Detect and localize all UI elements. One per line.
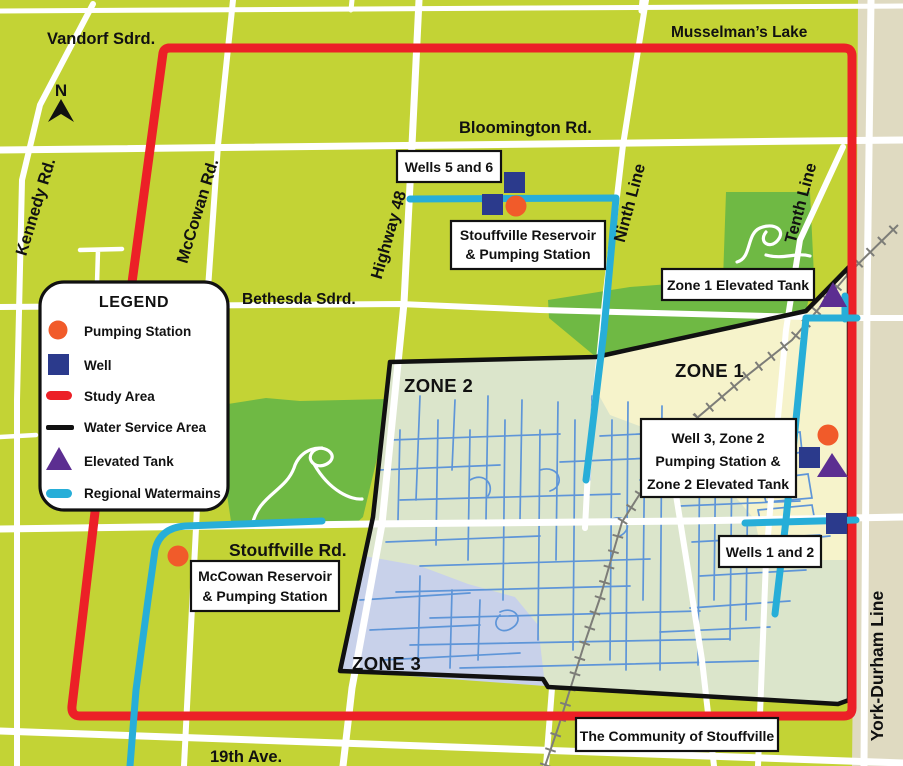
callout-text: & Pumping Station — [202, 588, 327, 604]
legend-title: LEGEND — [99, 294, 169, 311]
label-zone3: ZONE 3 — [352, 653, 421, 674]
legend: LEGEND Pumping Station Well Study Area W… — [40, 282, 228, 510]
legend-item-label: Elevated Tank — [84, 454, 174, 469]
well-marker — [482, 194, 503, 215]
label-york-durham: York-Durham Line — [867, 591, 887, 742]
label-19th-ave: 19th Ave. — [210, 748, 282, 766]
callout-text: Wells 5 and 6 — [405, 159, 494, 175]
callout-text: McCowan Reservoir — [198, 568, 332, 584]
legend-item-label: Study Area — [84, 389, 155, 404]
legend-item-label: Well — [84, 358, 112, 373]
callout-community: The Community of Stouffville — [576, 718, 778, 751]
callout-text: Wells 1 and 2 — [726, 544, 815, 560]
callout-wells-5-6: Wells 5 and 6 — [397, 151, 501, 182]
callout-wells-1-2: Wells 1 and 2 — [719, 536, 821, 567]
label-zone1: ZONE 1 — [675, 360, 744, 381]
callout-mccowan-reservoir: McCowan Reservoir & Pumping Station — [191, 561, 339, 611]
study-area-icon — [46, 391, 72, 400]
well-marker — [826, 513, 847, 534]
callout-text: Well 3, Zone 2 — [671, 430, 764, 446]
label-bethesda: Bethesda Sdrd. — [242, 291, 356, 308]
label-bloomington: Bloomington Rd. — [459, 119, 592, 137]
well-marker — [504, 172, 525, 193]
callout-zone1-elevated-tank: Zone 1 Elevated Tank — [662, 269, 814, 300]
callout-text: & Pumping Station — [465, 246, 590, 262]
north-label: N — [55, 81, 67, 100]
callout-text: Zone 2 Elevated Tank — [647, 476, 789, 492]
legend-item-label: Regional Watermains — [84, 486, 221, 501]
callout-text: The Community of Stouffville — [580, 728, 775, 744]
well-icon — [48, 354, 69, 375]
legend-item-label: Water Service Area — [84, 420, 207, 435]
label-musselmans-lake: Musselman’s Lake — [671, 24, 808, 41]
legend-item-label: Pumping Station — [84, 324, 191, 339]
water-service-area-icon — [46, 425, 74, 430]
stouffville-water-system-map: Vandorf Sdrd. Musselman’s Lake Bloomingt… — [0, 0, 903, 766]
well-marker — [799, 447, 820, 468]
pumping-station-marker — [506, 196, 527, 217]
regional-watermains-icon — [46, 489, 72, 498]
label-stouffville-rd: Stouffville Rd. — [229, 540, 347, 560]
callout-text: Zone 1 Elevated Tank — [667, 277, 809, 293]
label-vandorf: Vandorf Sdrd. — [47, 30, 155, 48]
callout-text: Pumping Station & — [655, 453, 780, 469]
label-zone2: ZONE 2 — [404, 375, 473, 396]
callout-well3-group: Well 3, Zone 2 Pumping Station & Zone 2 … — [641, 419, 796, 497]
park-west — [223, 398, 388, 528]
pumping-station-marker — [818, 425, 839, 446]
callout-stouffville-reservoir: Stouffville Reservoir & Pumping Station — [451, 221, 605, 269]
pumping-station-marker — [168, 546, 189, 567]
pumping-station-icon — [49, 321, 68, 340]
callout-text: Stouffville Reservoir — [460, 227, 597, 243]
